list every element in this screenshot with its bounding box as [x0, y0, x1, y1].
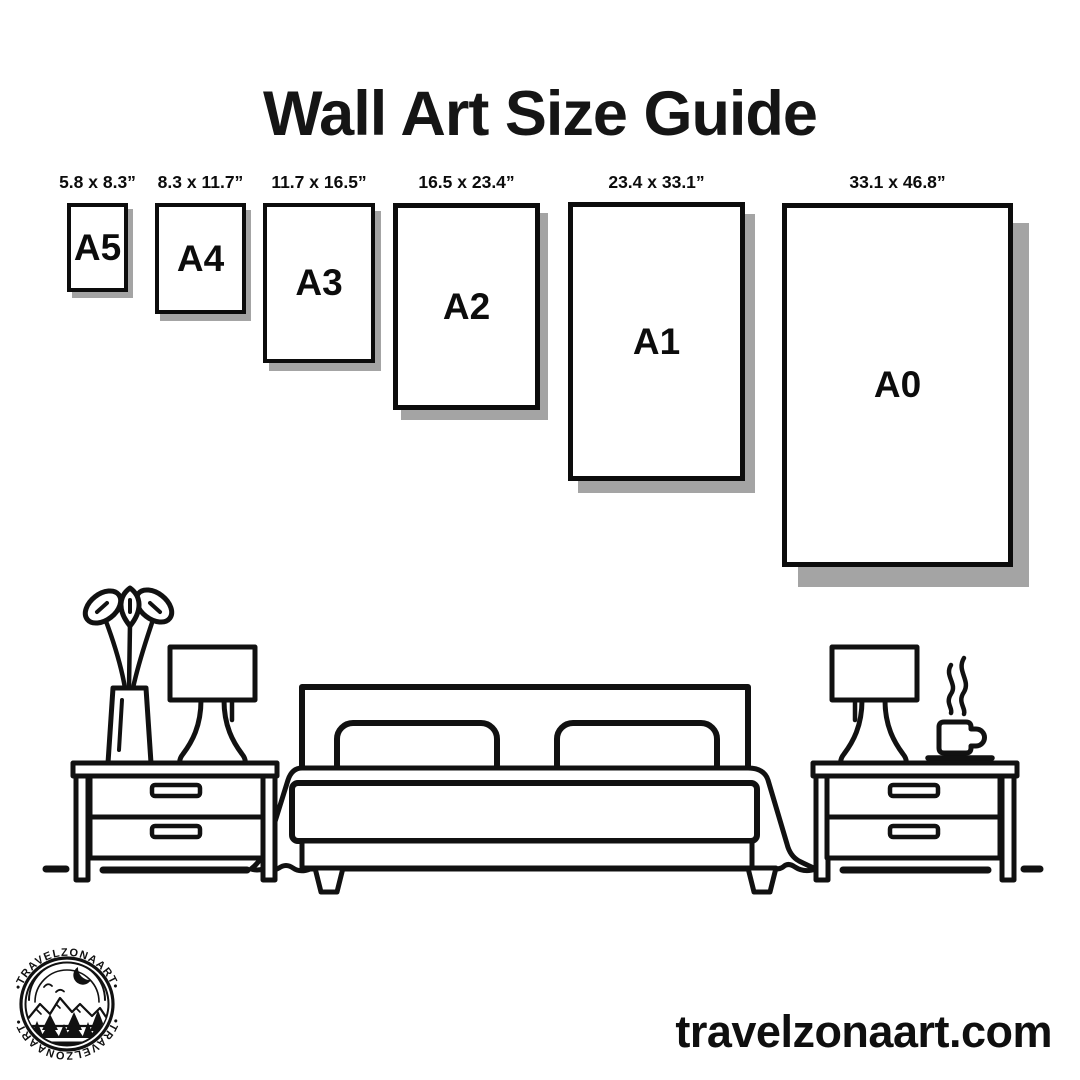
nightstand-leg — [76, 776, 88, 880]
nightstand-left-icon — [73, 763, 277, 880]
coffee-cup-icon — [928, 658, 992, 758]
paper-a3: A3 — [263, 203, 375, 363]
brand-logo: •TRAVELZONAART• •TRAVELZONAART• — [4, 933, 140, 1075]
drawer-handle — [890, 785, 938, 796]
paper-a2: A2 — [393, 203, 540, 410]
lamp-base — [841, 700, 906, 763]
potted-plant-icon — [79, 583, 178, 763]
nightstand-leg — [1002, 776, 1014, 880]
size-dimensions-a5: 5.8 x 8.3” — [59, 172, 136, 193]
vase — [108, 688, 151, 763]
lamp-shade — [170, 647, 255, 700]
double-bed-icon — [251, 687, 816, 892]
size-dimensions-a2: 16.5 x 23.4” — [418, 172, 514, 193]
steam — [961, 658, 966, 714]
drawer-handle — [890, 826, 938, 837]
stem — [129, 624, 130, 688]
size-dimensions-a4: 8.3 x 11.7” — [158, 172, 244, 193]
paper-a0: A0 — [782, 203, 1013, 567]
table-lamp-right-icon — [832, 647, 917, 763]
paper-a1: A1 — [568, 202, 745, 481]
size-dimensions-a3: 11.7 x 16.5” — [271, 172, 366, 193]
size-dimensions-a1: 23.4 x 33.1” — [608, 172, 704, 193]
page-title: Wall Art Size Guide — [0, 78, 1080, 150]
bed-leg-left — [315, 868, 343, 892]
paper-a4: A4 — [155, 203, 246, 314]
bird-icon — [56, 990, 64, 992]
website-url: travelzonaart.com — [675, 1006, 1052, 1058]
size-dimensions-a0: 33.1 x 46.8” — [849, 172, 945, 193]
stem — [133, 614, 155, 688]
lamp-base — [180, 700, 245, 763]
logo-text-top: •TRAVELZONAART• — [12, 947, 121, 991]
steam — [949, 665, 953, 713]
drawer-handle — [152, 826, 200, 837]
nightstand-right-icon — [813, 763, 1017, 880]
drawer-handle — [152, 785, 200, 796]
cup — [939, 722, 985, 753]
table-lamp-left-icon — [170, 647, 255, 763]
bedroom-illustration — [0, 580, 1080, 900]
bed-base — [302, 841, 752, 868]
mattress — [292, 783, 757, 841]
paper-a5: A5 — [67, 203, 128, 292]
bird-icon — [44, 984, 52, 987]
lamp-shade — [832, 647, 917, 700]
bed-leg-right — [748, 868, 776, 892]
stem — [104, 616, 125, 688]
